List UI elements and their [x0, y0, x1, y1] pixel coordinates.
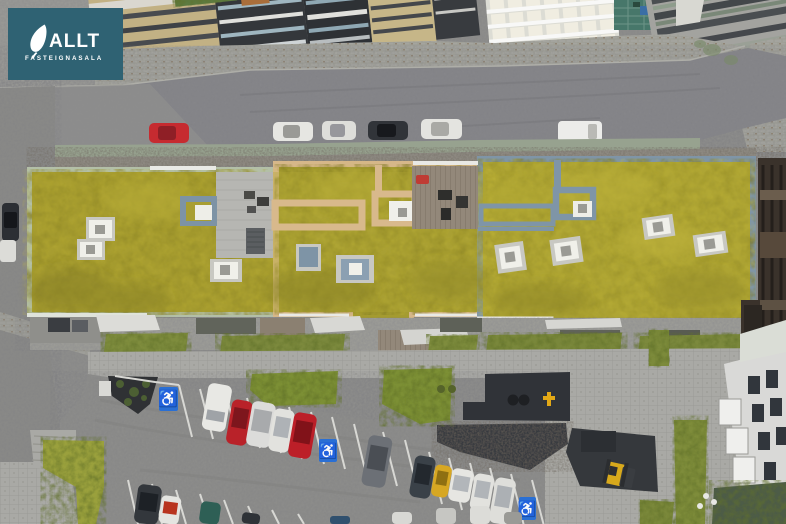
svg-text:FASTEIGNASALA: FASTEIGNASALA: [25, 55, 103, 62]
svg-text:♿: ♿: [319, 442, 338, 460]
svg-text:ALLT: ALLT: [49, 31, 100, 52]
svg-text:♿: ♿: [158, 389, 178, 408]
